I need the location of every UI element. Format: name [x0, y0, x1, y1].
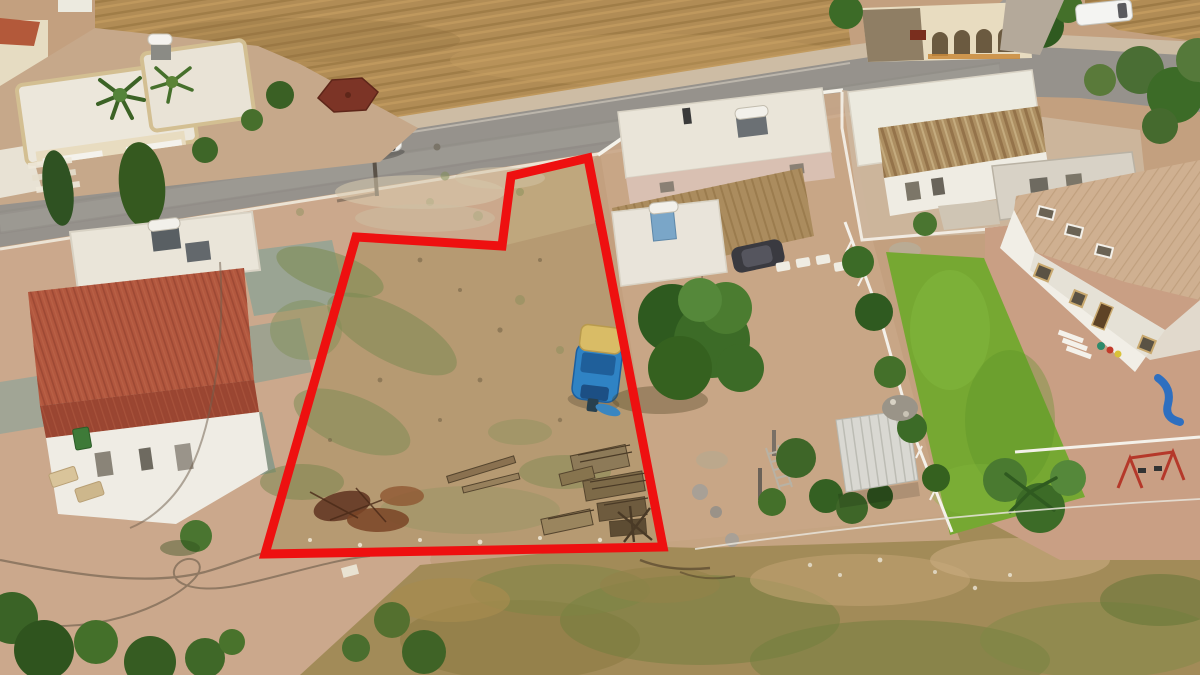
small-tree [913, 212, 937, 236]
green-wheelie-bin [72, 427, 91, 450]
garden-bush [266, 81, 294, 109]
toy-bucket [1097, 342, 1105, 350]
garden-bush [192, 137, 218, 163]
rock-pile [882, 395, 918, 421]
aerial-photo [0, 0, 1200, 675]
manhole [434, 144, 441, 151]
toy-bucket [1115, 351, 1122, 358]
villa-solar-heater [148, 34, 172, 45]
aerial-photo-canvas [0, 0, 1200, 675]
toy-bucket [1107, 347, 1114, 354]
garden-bush [241, 109, 263, 131]
solar-tank [649, 200, 679, 214]
solar-panel-blue [651, 211, 677, 241]
